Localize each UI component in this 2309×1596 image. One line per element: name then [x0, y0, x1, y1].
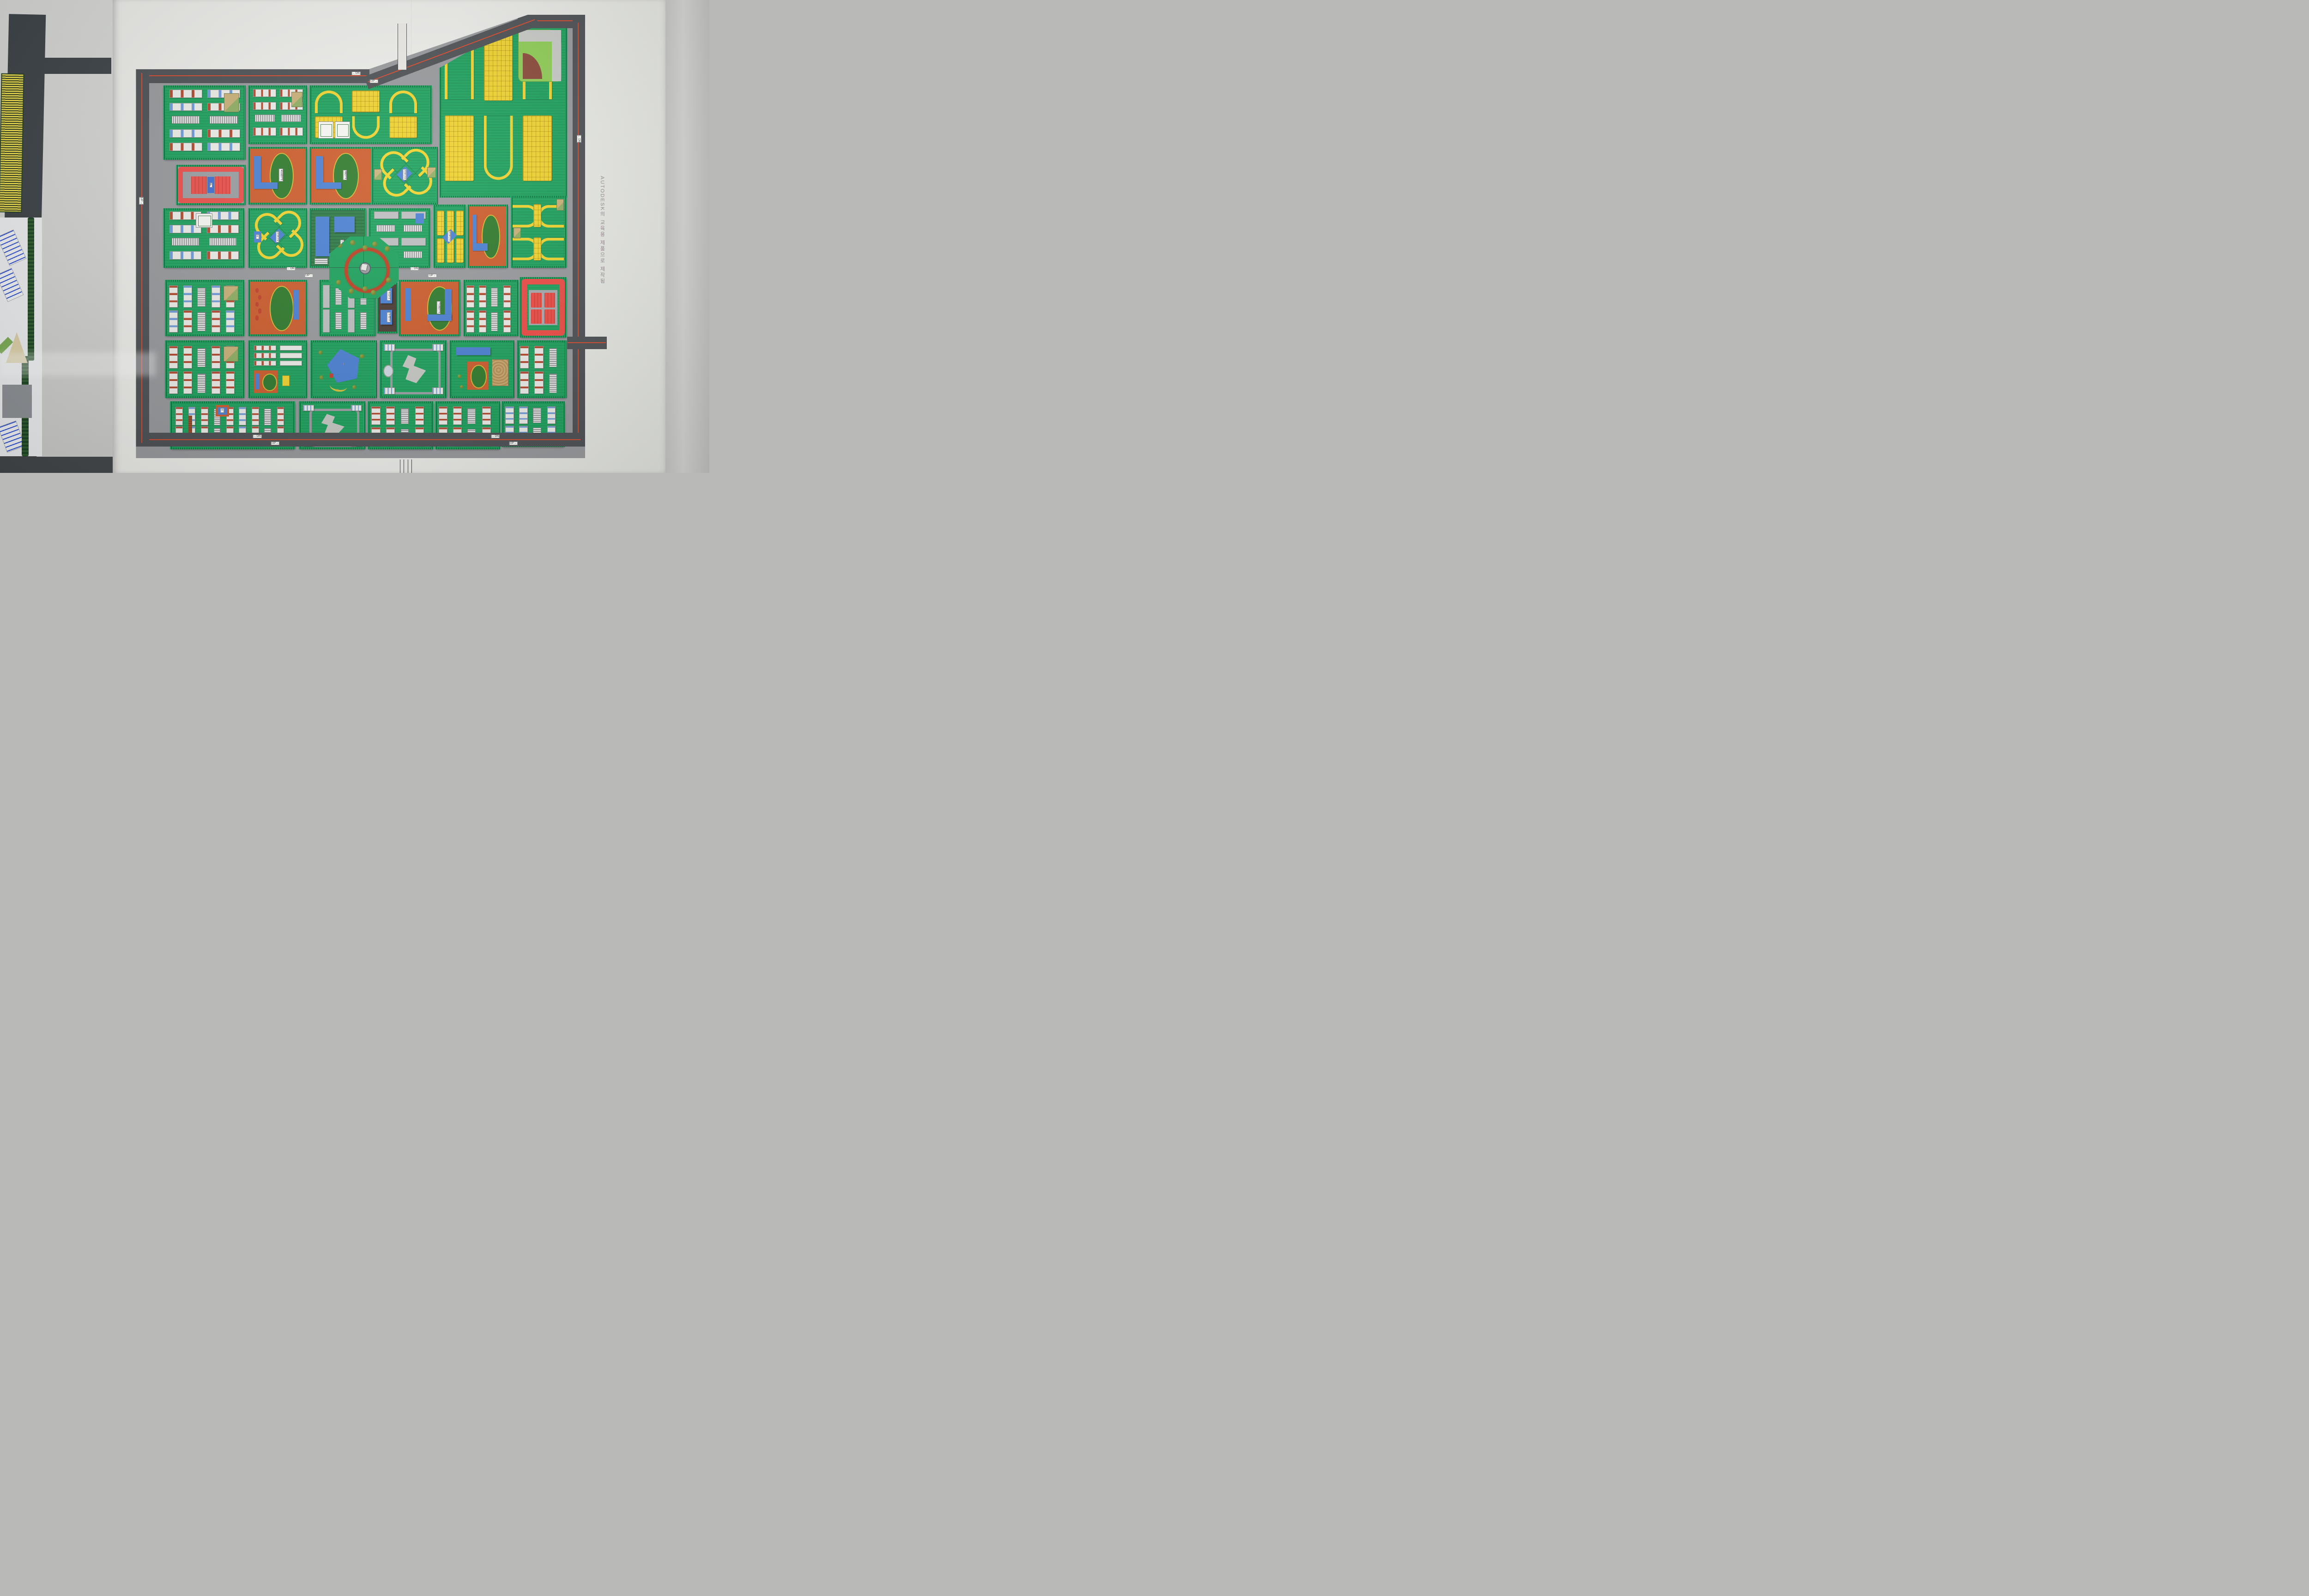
e-apartments [463, 280, 519, 336]
label-small_tag: ㅇ [256, 235, 260, 239]
apartment-slab [505, 406, 514, 424]
sports-court [335, 121, 350, 139]
road-sign-up: UP→ [509, 441, 517, 445]
parking-strip [401, 408, 409, 424]
left-poster-path [2, 385, 31, 418]
label-small_tag: ㅇ [221, 408, 224, 412]
apartment-slab [254, 353, 276, 358]
parking-strip [335, 312, 342, 329]
red-serpentine [255, 302, 259, 307]
red-serpentine [255, 315, 259, 320]
parking-strip [255, 115, 275, 122]
apartment-slab [201, 407, 208, 425]
e-rowhouses [511, 196, 567, 268]
apartment-slab [439, 406, 447, 425]
label-high_school: 고등학교 [437, 301, 441, 314]
school-east [467, 205, 508, 268]
red-serpentine [255, 288, 259, 293]
apartment-slab [384, 344, 395, 351]
apartment-slab [384, 387, 395, 394]
apartment-slab [253, 102, 276, 110]
apartment-slab [253, 127, 276, 135]
apartment-slab [503, 310, 511, 332]
apartment-slab [169, 143, 202, 151]
road-sign-dn: ←DN [253, 435, 262, 438]
apartment-slab [386, 406, 395, 425]
rowhouse-hairpin [538, 238, 564, 260]
rowhouse-grid [484, 35, 513, 101]
school-building-L [472, 243, 488, 251]
road-right [573, 18, 585, 446]
tree [372, 242, 377, 247]
kindergarten-building [255, 374, 259, 389]
photo-of-model: P초등학교중학교커뮤니티커뮤니티ㅇ도서관커뮤니티소방서우체국고등학교ㅇ←DNUP… [0, 0, 709, 473]
library-building [334, 217, 355, 232]
label-middle_school: 중학교 [343, 170, 347, 180]
apartment-slab [183, 346, 192, 369]
road-sign-dn: ←DN [577, 135, 581, 143]
apartment-slab [207, 143, 240, 151]
parking-strip [549, 348, 557, 368]
school-building-bar [405, 288, 411, 321]
label-tag [343, 363, 344, 365]
commercial-block [544, 293, 555, 308]
tree [350, 240, 355, 245]
parking-strip [197, 348, 205, 368]
w-apartments [163, 208, 244, 268]
rowhouse-grid [533, 237, 541, 260]
court-line [198, 216, 211, 226]
apartment-slab [277, 407, 284, 425]
apartment-slab [169, 251, 201, 260]
road-center-line [141, 73, 142, 443]
apartment-slab [207, 129, 240, 138]
tree [352, 385, 356, 389]
road-sign-up: UP→ [271, 441, 279, 445]
apartment-slab [280, 361, 302, 366]
apartment-slab [226, 310, 235, 332]
parking-strip [360, 312, 367, 329]
rowhouse-hairpin [484, 115, 513, 180]
apartment-slab [348, 309, 355, 332]
kindergarten-block [248, 340, 308, 398]
commercial-slab [215, 176, 230, 194]
apartment-slab [479, 285, 487, 308]
printed-park-patch [556, 199, 564, 211]
parking-strip [172, 238, 199, 245]
apartment-slab [169, 129, 202, 138]
central-park [329, 236, 399, 298]
apartment-slab [547, 406, 556, 424]
light-reflection [0, 352, 156, 376]
road-sign-up: UP→ [370, 79, 378, 83]
rowhouse-grid [533, 204, 541, 227]
road-sign-up: UP→ [428, 274, 436, 278]
road-stub-bottom [408, 459, 412, 473]
road-center-line [139, 75, 368, 76]
road-sign-up: UP→ [139, 197, 144, 205]
rowhouse-grid [456, 211, 463, 236]
school-building-L [316, 182, 341, 189]
printed-park-patch [374, 169, 382, 180]
road-sign-up: UP→ [305, 274, 313, 278]
parking-strip [404, 251, 422, 258]
apartment-slab [432, 387, 443, 394]
running-track [270, 286, 294, 331]
road-top-left [136, 69, 369, 83]
apartment-slab [453, 406, 462, 425]
gym-building-bar [456, 347, 490, 355]
running-track [262, 374, 277, 391]
parking-strip [264, 409, 271, 426]
apartment-slab [303, 405, 314, 411]
road-sign-dn: ←DN [410, 267, 419, 271]
w-apartments-2 [165, 280, 244, 336]
tree [458, 375, 461, 378]
apartment-slab [212, 371, 220, 394]
commercial-slab [191, 176, 207, 194]
apartment-slab [169, 103, 202, 111]
n-apartments [248, 85, 308, 144]
high-school: 고등학교 [399, 280, 460, 336]
parking-strip [491, 288, 498, 307]
parking-strip [197, 312, 205, 331]
left-poster-road-branch [18, 58, 111, 74]
road-left [136, 69, 149, 447]
school-building-bar [293, 290, 299, 320]
rowhouse-grid [437, 211, 444, 236]
tree [360, 354, 364, 359]
label-parking: P [210, 183, 212, 187]
baseball-infield [523, 53, 542, 79]
apartment-slab [401, 238, 426, 245]
nw-apartments [163, 85, 246, 160]
rowhouse-grid [437, 238, 444, 263]
road-stub-bottom [400, 459, 404, 473]
sw-apartments [165, 340, 244, 398]
tree [363, 286, 368, 291]
apartment-slab [253, 89, 276, 97]
label-community: 커뮤니티 [403, 169, 406, 180]
parking-strip [376, 225, 395, 232]
pentagon-park [310, 340, 377, 398]
parking-strip [172, 116, 199, 123]
school-building-L [254, 182, 278, 189]
red-serpentine [258, 295, 261, 300]
label-post_office: 우체국 [387, 312, 391, 322]
road-sign-dn: ←DN [352, 72, 361, 75]
sports-block [449, 340, 514, 398]
rowhouse-grid [456, 238, 463, 263]
tree [363, 245, 368, 250]
plaza-hall [380, 340, 447, 398]
apartment-slab [169, 285, 178, 308]
court-line [337, 124, 349, 137]
apartment-slab [207, 251, 239, 260]
x-cluster-north: 커뮤니티 [371, 147, 438, 205]
red-serpentine [258, 308, 261, 313]
apartment-slab [169, 90, 202, 98]
printed-park-patch [224, 346, 238, 361]
rowhouse-grid [352, 91, 380, 112]
parking-strip [533, 408, 541, 423]
left-poster-building [0, 268, 24, 302]
commercial-block [531, 309, 542, 324]
rowhouse-hairpin [315, 91, 343, 113]
tree [349, 289, 354, 294]
apartment-slab [175, 407, 183, 425]
red-commercial-center [520, 277, 566, 338]
se-apartments [517, 340, 566, 398]
printed-park-patch [224, 93, 239, 113]
label-community: 커뮤니티 [276, 231, 279, 242]
commercial-block [544, 309, 555, 324]
n-rowhouse-estate [309, 85, 432, 144]
school-track-west [248, 280, 308, 336]
neighborhood-building [416, 213, 424, 224]
left-poster-rowhouse-strip [0, 73, 24, 212]
road-stub-right [567, 337, 607, 349]
apartment-slab [520, 371, 529, 394]
printed-park-patch [224, 286, 238, 301]
apartment-slab [479, 310, 487, 332]
court-line [320, 124, 332, 137]
apartment-slab [280, 345, 302, 351]
road-stub-top [398, 24, 407, 69]
road-sign-dn: ←DN [287, 267, 296, 271]
road-sign-dn: ←DN [491, 435, 500, 438]
printed-park-patch [427, 167, 435, 178]
sports-court [318, 121, 333, 139]
parking-strip [197, 374, 205, 393]
community-hall-pentagon [324, 345, 363, 384]
apartment-slab [212, 346, 220, 369]
left-poster-hedge [28, 218, 34, 361]
printed-park-patch [514, 228, 521, 238]
sports-court [196, 213, 212, 228]
tree [336, 280, 341, 285]
tree [319, 351, 322, 354]
running-track [471, 365, 487, 388]
apartment-slab [351, 405, 362, 411]
red-market-block: P [176, 165, 246, 205]
printed-park-patch [291, 92, 302, 107]
road-center-line [578, 23, 579, 442]
apartment-slab [254, 361, 276, 366]
entrance-marker [330, 374, 333, 378]
parking-strip [210, 116, 237, 123]
apartment-slab [374, 212, 399, 219]
parking-strip [467, 408, 476, 424]
left-poster-building [0, 230, 27, 266]
parking-strip [404, 225, 422, 232]
small-building [282, 375, 290, 386]
apartment-slab [212, 310, 220, 332]
rowhouse-grid [523, 115, 552, 181]
tree [320, 375, 323, 379]
apartment-slab [482, 406, 491, 425]
kindergarten-ground [254, 370, 278, 393]
mini-track-ground [467, 362, 488, 390]
label-community: 커뮤니티 [447, 231, 451, 242]
left-poster-site [0, 218, 42, 456]
printed-fountain [383, 365, 393, 377]
wall-edge [665, 0, 709, 473]
apartment-slab [503, 285, 511, 308]
apartment-slab [183, 371, 192, 394]
apartment-slab [534, 346, 543, 369]
apartment-slab [280, 127, 303, 135]
tree [385, 246, 390, 251]
baseball-field [518, 30, 562, 82]
label-fire_station: 소방서 [387, 290, 391, 301]
apartment-slab [520, 346, 529, 369]
site-model: P초등학교중학교커뮤니티커뮤니티ㅇ도서관커뮤니티소방서우체국고등학교ㅇ←DNUP… [136, 15, 585, 459]
commercial-block [531, 293, 542, 308]
apartment-slab [169, 310, 178, 332]
apartment-slab [323, 285, 330, 308]
apartment-slab [323, 309, 330, 332]
apartment-slab [212, 285, 220, 308]
parking-strip [549, 374, 557, 393]
apartment-slab [466, 285, 474, 308]
label-elementary_school: 초등학교 [279, 169, 283, 181]
tree [371, 290, 376, 295]
school-building-L [427, 314, 452, 321]
rowhouse-grid [445, 115, 474, 181]
rowhouse-hairpin [352, 116, 380, 139]
middle-school: 중학교 [309, 147, 373, 205]
apartment-slab [183, 285, 192, 308]
parking-strip [197, 288, 205, 307]
apartment-slab [183, 310, 192, 332]
running-track [482, 215, 500, 259]
rowhouse-hairpin [389, 91, 417, 113]
apartment-slab [466, 310, 474, 332]
apartment-slab [239, 407, 246, 425]
apartment-slab [252, 407, 259, 425]
brown-texture-bar [188, 416, 192, 435]
apartment-slab [519, 406, 528, 424]
apartment-slab [280, 353, 302, 358]
apartment-slab [226, 371, 235, 394]
apartment-slab [432, 344, 443, 351]
parking-strip [281, 115, 301, 122]
road-bottom [136, 433, 585, 447]
parking-strip [491, 312, 498, 331]
main-poster: P초등학교중학교커뮤니티커뮤니티ㅇ도서관커뮤니티소방서우체국고등학교ㅇ←DNUP… [113, 0, 665, 473]
apartment-slab [371, 406, 380, 425]
road-center-line [140, 439, 580, 440]
tree [460, 385, 463, 388]
x-cluster-west: 커뮤니티ㅇ [248, 208, 308, 268]
apartment-slab [415, 406, 424, 425]
parking-strip [209, 238, 236, 245]
library-building [315, 217, 329, 256]
autodesk-watermark: AUTODESK의 교육용 제품으로 제작됨 [598, 176, 606, 284]
apartment-slab [169, 346, 178, 369]
tree [386, 278, 391, 283]
apartment-slab [534, 371, 543, 394]
elementary-school: 초등학교 [248, 147, 308, 205]
parking-strip [314, 258, 328, 264]
apartment-slab [169, 371, 178, 394]
rowhouse-grid [389, 116, 417, 138]
bar-rowhouses: 커뮤니티 [433, 205, 465, 268]
printed-garden [492, 359, 508, 386]
apartment-slab [254, 345, 276, 351]
baseball-stand [552, 30, 561, 81]
